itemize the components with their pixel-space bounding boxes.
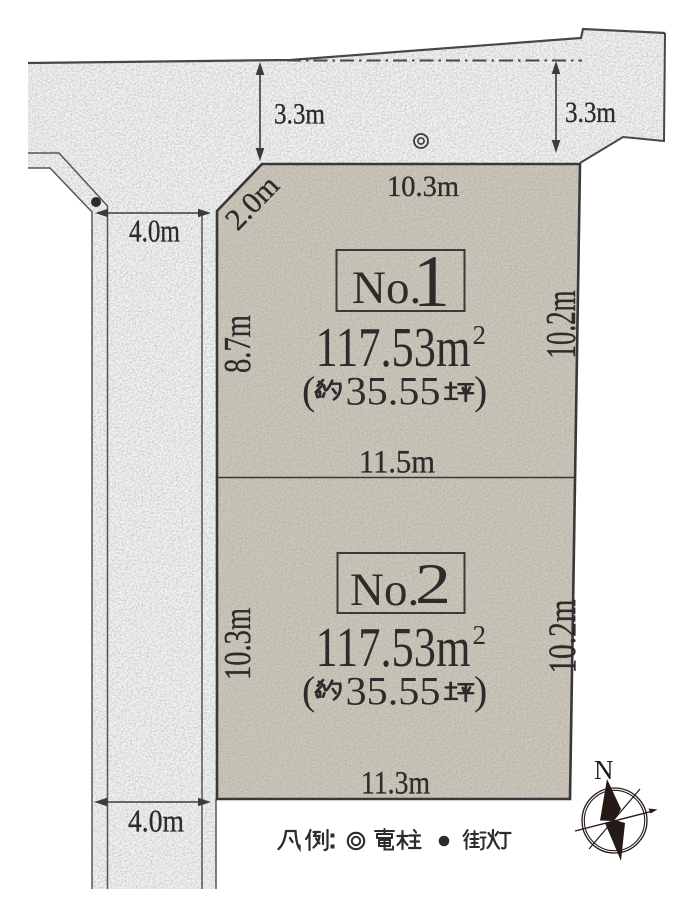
svg-text:3.3m: 3.3m bbox=[565, 96, 616, 129]
svg-text:11.3m: 11.3m bbox=[361, 766, 430, 802]
svg-text:N: N bbox=[594, 755, 614, 785]
svg-text:4.0m: 4.0m bbox=[129, 214, 180, 249]
svg-text:No.: No. bbox=[350, 564, 419, 616]
svg-text:3.3m: 3.3m bbox=[274, 98, 325, 131]
svg-text:4.0m: 4.0m bbox=[128, 804, 184, 839]
svg-text:2: 2 bbox=[473, 320, 487, 350]
svg-text:11.5m: 11.5m bbox=[359, 445, 435, 481]
svg-text:(: ( bbox=[302, 368, 315, 413]
svg-text:1: 1 bbox=[413, 241, 450, 323]
svg-text:10.3m: 10.3m bbox=[217, 608, 259, 680]
svg-text:(: ( bbox=[302, 668, 315, 713]
svg-text:No.: No. bbox=[352, 262, 421, 314]
svg-text:10.3m: 10.3m bbox=[387, 170, 459, 203]
svg-text:): ) bbox=[474, 368, 487, 413]
svg-text:): ) bbox=[474, 668, 487, 713]
svg-text:10.2m: 10.2m bbox=[539, 290, 585, 358]
svg-text:2: 2 bbox=[473, 620, 487, 650]
svg-text:10.2m: 10.2m bbox=[541, 600, 584, 674]
svg-text:35.55: 35.55 bbox=[346, 369, 441, 414]
svg-text:35.55: 35.55 bbox=[346, 669, 441, 714]
svg-text:2: 2 bbox=[415, 553, 451, 616]
svg-text:8.7m: 8.7m bbox=[217, 315, 259, 373]
